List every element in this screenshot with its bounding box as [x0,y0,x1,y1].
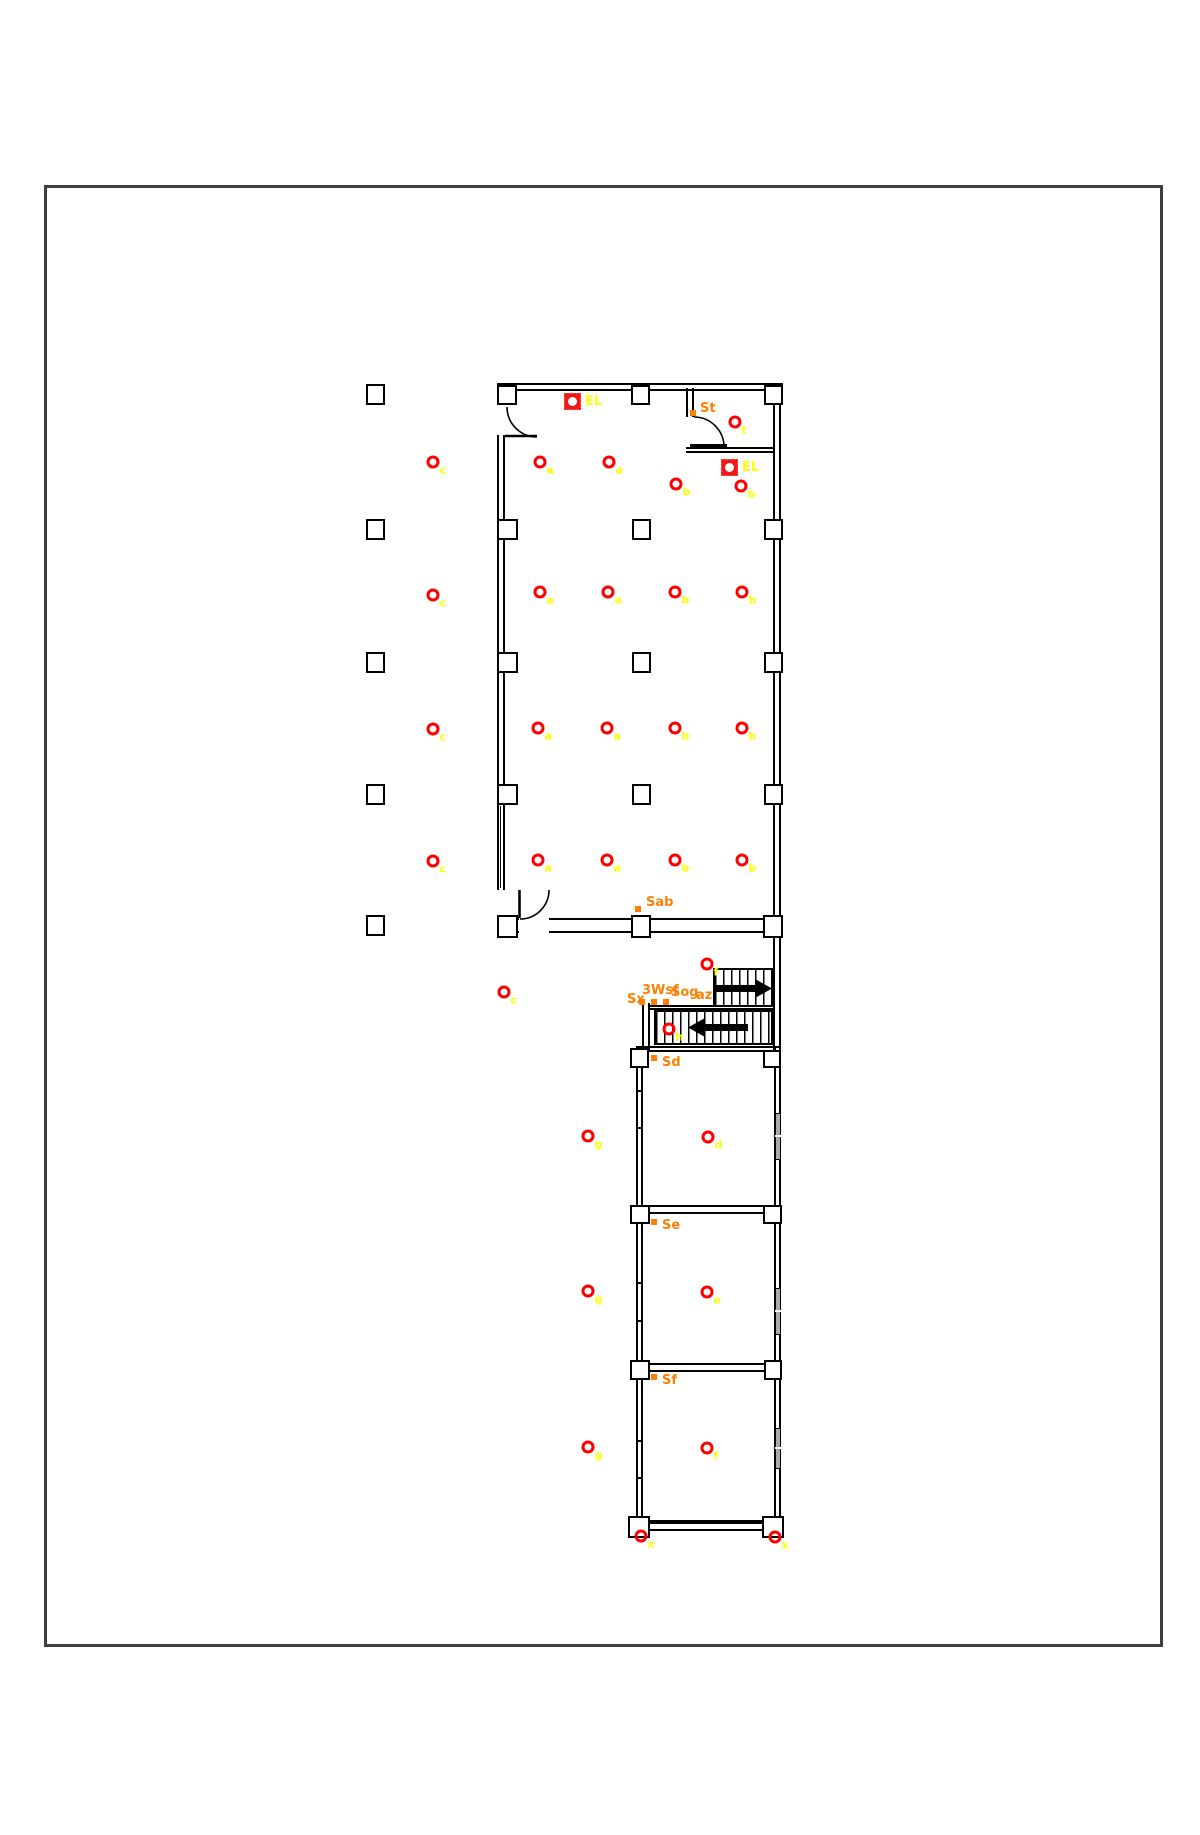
window-mullion [636,1090,643,1092]
el-panel-symbol: EL [564,393,581,410]
light-symbol: a [534,456,547,469]
column [763,1205,782,1224]
light-label: h [676,1032,684,1043]
light-symbol: g [582,1441,595,1454]
window-divider [775,1135,781,1137]
light-symbol: e [701,1286,714,1299]
light-symbol: a [601,722,614,735]
light-label: t [742,425,747,436]
light-label: b [682,595,690,606]
light-label: b [682,863,690,874]
connection-marker [651,999,657,1005]
annotation-label: Sog [671,986,699,999]
light-label: x [648,1539,655,1550]
wall [636,1048,643,1538]
wall [636,1205,781,1214]
light-symbol: a [532,722,545,735]
column [497,784,518,805]
light-label: a [615,595,622,606]
floor-plan-canvas: tcaabbcaabbcaabbcaabbfchgdgegfxxELELStSa… [0,0,1200,1835]
light-label: f [714,967,719,978]
annotation-label: Se [662,1219,680,1232]
light-symbol: g [582,1130,595,1143]
el-panel-label: EL [742,461,759,474]
light-symbol: a [602,586,615,599]
staircase-upper-flight [713,968,773,1007]
light-symbol: a [532,854,545,867]
window-mullion [636,1477,643,1479]
column [632,652,651,673]
annotation-label: az [696,989,712,1002]
light-symbol: b [736,722,749,735]
connection-marker [651,1055,657,1061]
column [366,384,385,405]
light-label: c [511,995,518,1006]
column [497,915,518,938]
annotation-label: Sd [662,1056,681,1069]
window-mullion [500,806,501,888]
column [366,652,385,673]
light-symbol: f [701,958,714,971]
light-label: d [715,1140,723,1151]
light-label: b [749,595,757,606]
light-label: x [782,1540,789,1551]
window-divider [775,1447,781,1449]
light-label: f [714,1451,719,1462]
wall [690,444,727,449]
light-label: c [440,465,447,476]
light-label: a [616,465,623,476]
light-label: c [440,598,447,609]
column [630,1048,649,1068]
light-symbol: c [427,723,440,736]
column [763,1050,781,1068]
light-symbol: a [603,456,616,469]
column [764,519,783,540]
window-divider [775,1310,781,1312]
connection-marker [635,906,641,912]
wall [628,1520,784,1531]
light-label: g [595,1139,603,1150]
light-label: a [614,863,621,874]
light-symbol: b [670,478,683,491]
connection-marker [639,999,645,1005]
column [631,385,650,405]
light-symbol: b [669,722,682,735]
light-symbol: a [534,586,547,599]
wall [636,1046,781,1052]
light-label: a [614,731,621,742]
connection-marker [663,999,669,1005]
light-label: g [595,1450,603,1461]
column [764,1360,782,1380]
light-symbol: c [427,589,440,602]
el-panel-label: EL [585,395,602,408]
light-symbol: c [498,986,511,999]
column [764,652,783,673]
light-symbol: b [736,854,749,867]
light-label: b [683,487,691,498]
column [763,915,783,938]
light-label: a [545,863,552,874]
light-symbol: d [702,1131,715,1144]
light-symbol: b [669,586,682,599]
drawing-border [44,185,1163,1647]
annotation-label: Sf [662,1374,677,1387]
column [366,915,385,936]
annotation-label: St [700,402,716,415]
light-label: c [440,864,447,875]
column [366,784,385,805]
light-symbol: g [582,1285,595,1298]
light-label: b [682,731,690,742]
light-label: b [749,731,757,742]
column [366,519,385,540]
light-symbol: a [601,854,614,867]
column [764,385,783,405]
column [630,1360,650,1380]
connection-marker [690,410,696,416]
connection-marker [651,1219,657,1225]
door-opening [519,915,549,935]
light-label: b [748,489,756,500]
column [632,519,651,540]
light-symbol: b [735,480,748,493]
light-label: a [547,595,554,606]
column [497,519,518,540]
annotation-label: Sab [646,896,673,909]
light-symbol: t [729,416,742,429]
light-label: e [714,1295,721,1306]
window-mullion [636,1440,643,1442]
column [764,784,783,805]
light-symbol: f [701,1442,714,1455]
light-symbol: h [663,1023,676,1036]
column [631,915,651,938]
column [497,652,518,673]
el-panel-circle [725,463,734,472]
light-label: b [749,863,757,874]
light-symbol: x [769,1531,782,1544]
light-label: c [440,732,447,743]
window-mullion [504,806,505,888]
column [497,385,517,405]
wall [642,1003,650,1050]
light-label: a [547,465,554,476]
window-mullion [636,1127,643,1129]
light-symbol: b [736,586,749,599]
window-mullion [636,1282,643,1284]
wall [773,383,781,1052]
light-label: g [595,1294,603,1305]
wall [636,1363,781,1372]
light-label: a [545,731,552,742]
el-panel-symbol: EL [721,459,738,476]
light-symbol: c [427,855,440,868]
light-symbol: c [427,456,440,469]
column [632,784,651,805]
light-symbol: x [635,1530,648,1543]
light-symbol: b [669,854,682,867]
connection-marker [651,1374,657,1380]
window-mullion [636,1320,643,1322]
el-panel-circle [568,397,577,406]
column [630,1205,650,1224]
